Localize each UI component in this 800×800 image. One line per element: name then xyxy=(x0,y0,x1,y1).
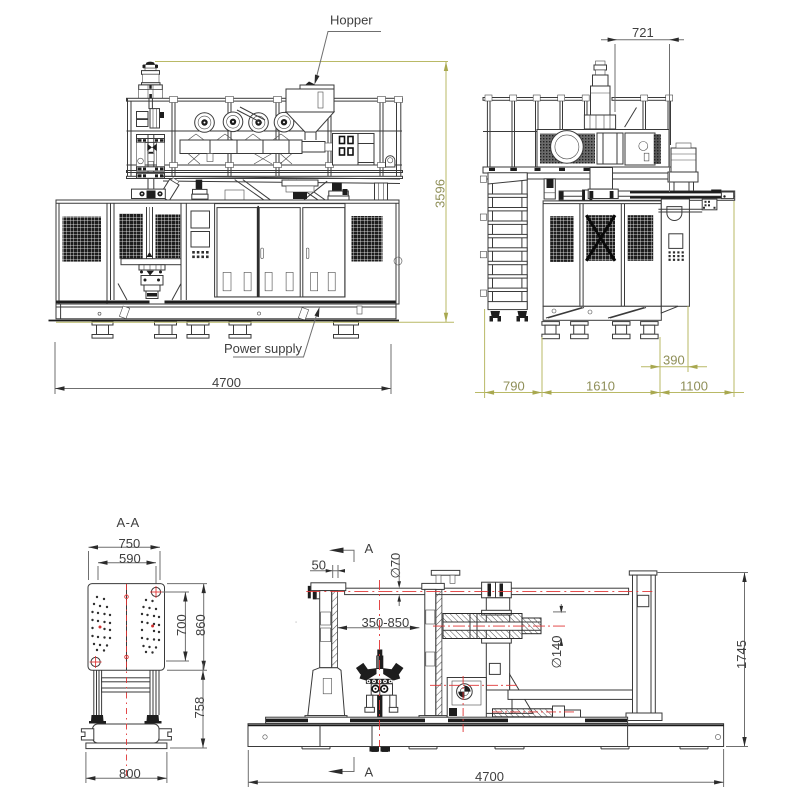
svg-text:1610: 1610 xyxy=(586,379,615,394)
svg-text:A-A: A-A xyxy=(117,515,140,530)
svg-text:Hopper: Hopper xyxy=(330,13,373,28)
svg-text:350-850: 350-850 xyxy=(362,615,410,630)
svg-text:∅140: ∅140 xyxy=(549,635,564,668)
svg-text:790: 790 xyxy=(503,379,525,394)
svg-text:4700: 4700 xyxy=(212,375,241,390)
svg-text:A: A xyxy=(365,541,374,556)
svg-text:390: 390 xyxy=(663,353,685,368)
svg-text:Power supply: Power supply xyxy=(224,341,303,356)
svg-text:721: 721 xyxy=(632,25,654,40)
svg-text:4700: 4700 xyxy=(475,769,504,784)
svg-text:800: 800 xyxy=(119,766,141,781)
svg-text:758: 758 xyxy=(192,697,207,719)
svg-text:1100: 1100 xyxy=(680,379,708,394)
svg-text:A: A xyxy=(365,765,374,780)
svg-text:590: 590 xyxy=(119,551,141,566)
svg-text:700: 700 xyxy=(174,614,189,636)
svg-text:50: 50 xyxy=(312,558,326,573)
svg-text:750: 750 xyxy=(119,536,141,551)
svg-text:860: 860 xyxy=(193,614,208,636)
svg-text:∅70: ∅70 xyxy=(388,553,403,579)
svg-text:3596: 3596 xyxy=(433,179,448,208)
svg-text:1745: 1745 xyxy=(734,640,749,669)
